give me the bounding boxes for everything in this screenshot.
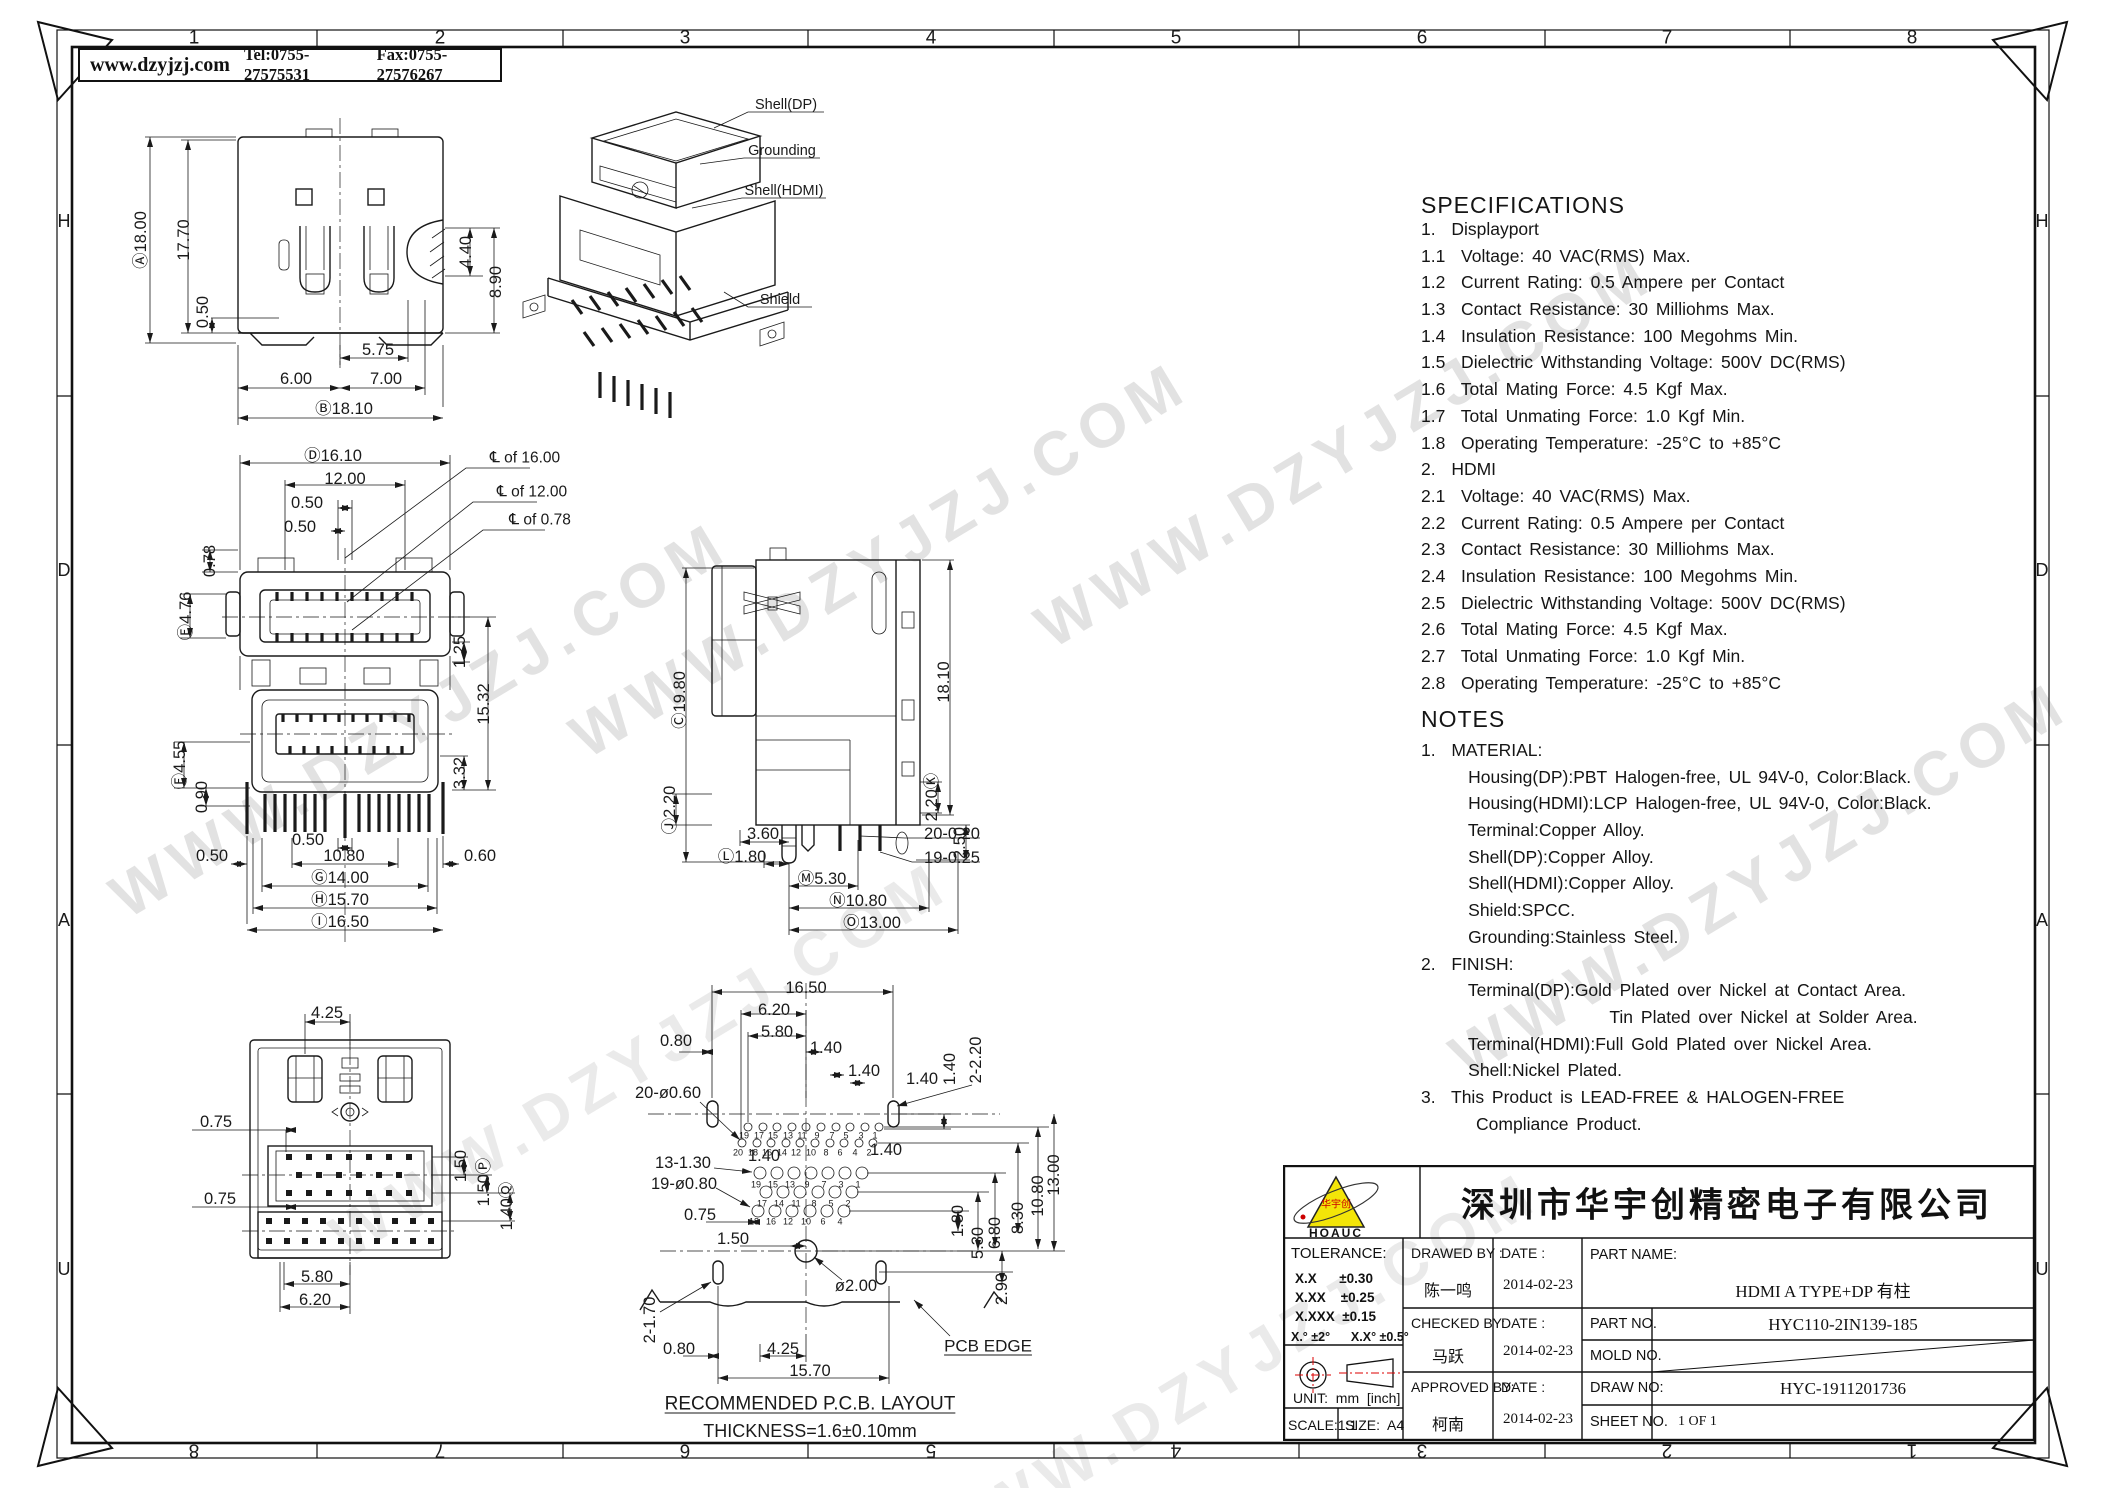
approved-by-name: 柯南 [1432,1411,1464,1435]
website-text: www.dzyjzj.com [90,54,230,77]
part-no-value: HYC110-2IN139-185 [1768,1315,1918,1335]
spec-line: 1.8 Operating Temperature: -25°C to +85°… [1421,433,1846,460]
logo-brand-text: HOAUC [1309,1226,1363,1240]
note-line: Shell(DP):Copper Alloy. [1421,847,1931,874]
tolerance-row: X.X ±0.30 [1295,1271,1373,1286]
fax-text: Fax:0755-27576267 [377,45,500,85]
header-contact-box: www.dzyjzj.com Tel:0755-27575531 Fax:075… [78,48,502,82]
sheet-no-value: 1 OF 1 [1678,1414,1717,1430]
spec-line: 2.5 Dielectric Withstanding Voltage: 500… [1421,593,1846,620]
top-view-drawing [145,118,500,425]
note-line: Tin Plated over Nickel at Solder Area. [1421,1007,1931,1034]
note-line: Housing(DP):PBT Halogen-free, UL 94V-0, … [1421,767,1931,794]
notes-list: 1. MATERIAL: Housing(DP):PBT Halogen-fre… [1421,740,1931,1140]
part-no-label: PART NO. [1590,1316,1657,1332]
spec-line: 2.1 Voltage: 40 VAC(RMS) Max. [1421,486,1846,513]
drawed-by-name: 陈一鸣 [1424,1277,1472,1301]
spec-line: 2.4 Insulation Resistance: 100 Megohms M… [1421,566,1846,593]
note-line: Terminal(DP):Gold Plated over Nickel at … [1421,980,1931,1007]
note-line: Shield:SPCC. [1421,900,1931,927]
note-line: Compliance Product. [1421,1114,1931,1141]
spec-line: 1.3 Contact Resistance: 30 Milliohms Max… [1421,299,1846,326]
title-block: 华宇创 HOAUC 深圳市华宇创精密电子有限公司 TOLERANCE: X.X … [1283,1165,2035,1441]
company-name: 深圳市华宇创精密电子有限公司 [1461,1178,1993,1227]
drawed-by-label: DRAWED BY : [1411,1245,1503,1261]
draw-no-value: HYC-1911201736 [1780,1379,1906,1399]
specifications-title: SPECIFICATIONS [1421,192,1625,219]
unit-text: UNIT: mm [inch] [1293,1390,1400,1406]
side-view-drawing [672,548,980,935]
sheet-no-label: SHEET NO. [1590,1414,1668,1430]
spec-line: 2.8 Operating Temperature: -25°C to +85°… [1421,673,1846,700]
spec-line: 2.6 Total Mating Force: 4.5 Kgf Max. [1421,619,1846,646]
tolerance-angles: X.° ±2° X.X° ±0.5° [1291,1330,1409,1344]
spec-line: 1.4 Insulation Resistance: 100 Megohms M… [1421,326,1846,353]
tolerance-row: X.XX ±0.25 [1295,1290,1374,1305]
note-line: Shell:Nickel Plated. [1421,1060,1931,1087]
spec-line: 1.7 Total Unmating Force: 1.0 Kgf Min. [1421,406,1846,433]
spec-line: 2.3 Contact Resistance: 30 Milliohms Max… [1421,539,1846,566]
spec-line: 1.5 Dielectric Withstanding Voltage: 500… [1421,352,1846,379]
front-view-drawing [174,455,545,945]
projection-symbol [1295,1357,1401,1393]
part-name-value: HDMI A TYPE+DP 有柱 [1735,1277,1910,1302]
tolerance-row: X.XXX ±0.15 [1295,1309,1376,1324]
note-line: Housing(HDMI):LCP Halogen-free, UL 94V-0… [1421,793,1931,820]
checked-date: 2014-02-23 [1503,1343,1573,1360]
approved-by-label: APPROVED BY: [1411,1379,1514,1395]
spec-line: 1.6 Total Mating Force: 4.5 Kgf Max. [1421,379,1846,406]
mold-no-label: MOLD NO. [1590,1348,1662,1364]
note-line: Terminal(HDMI):Full Gold Plated over Nic… [1421,1034,1931,1061]
specifications-list: 1. Displayport1.1 Voltage: 40 VAC(RMS) M… [1421,219,1846,699]
tolerance-title: TOLERANCE: [1291,1245,1387,1262]
spec-line: 1.1 Voltage: 40 VAC(RMS) Max. [1421,246,1846,273]
spec-line: 1.2 Current Rating: 0.5 Ampere per Conta… [1421,272,1846,299]
date-label: DATE : [1501,1245,1545,1261]
note-line: Shell(HDMI):Copper Alloy. [1421,873,1931,900]
engineering-drawing-sheet: { "header": { "website": "www.dzyjzj.com… [0,0,2105,1488]
note-line: 2. FINISH: [1421,954,1931,981]
date-label: DATE : [1501,1379,1545,1395]
checked-by-label: CHECKED BY: [1411,1315,1505,1331]
drawed-date: 2014-02-23 [1503,1277,1573,1294]
part-name-label: PART NAME: [1590,1247,1677,1263]
draw-no-label: DRAW NO: [1590,1380,1664,1396]
note-line: Grounding:Stainless Steel. [1421,927,1931,954]
checked-by-name: 马跃 [1432,1343,1464,1367]
logo-cn-text: 华宇创 [1321,1196,1351,1211]
approved-date: 2014-02-23 [1503,1411,1573,1428]
note-line: Terminal:Copper Alloy. [1421,820,1931,847]
pcb-layout-drawing [640,983,1065,1384]
date-label: DATE : [1501,1315,1545,1331]
note-line: 1. MATERIAL: [1421,740,1931,767]
size-text: SIZE: A4 [1345,1417,1404,1433]
rear-view-drawing [192,1014,515,1314]
telephone-text: Tel:0755-27575531 [244,45,363,85]
spec-line: 1. Displayport [1421,219,1846,246]
spec-line: 2.7 Total Unmating Force: 1.0 Kgf Min. [1421,646,1846,673]
note-line: 3. This Product is LEAD-FREE & HALOGEN-F… [1421,1087,1931,1114]
isometric-view-drawing [523,112,826,418]
spec-line: 2. HDMI [1421,459,1846,486]
spec-line: 2.2 Current Rating: 0.5 Ampere per Conta… [1421,513,1846,540]
notes-title: NOTES [1421,706,1505,733]
